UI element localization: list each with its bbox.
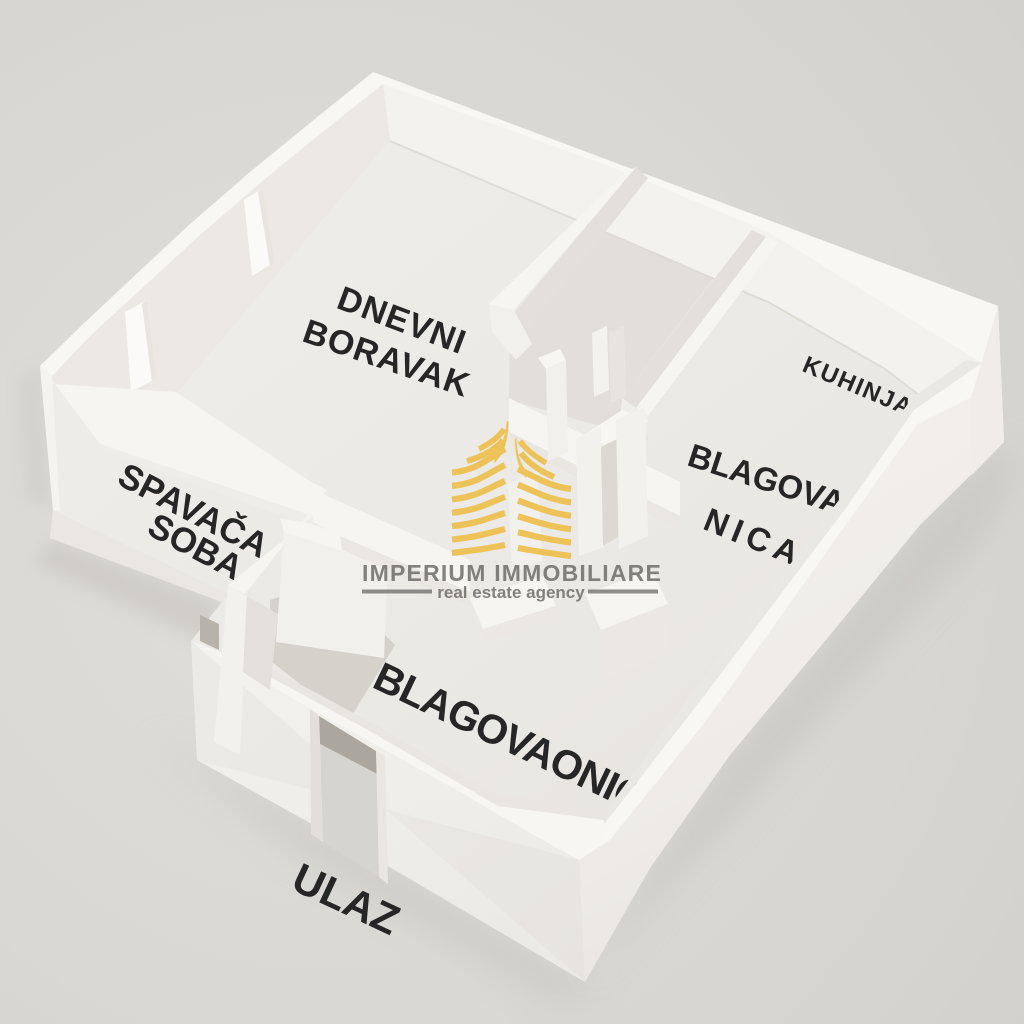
svg-text:real estate agency: real estate agency (437, 583, 585, 602)
